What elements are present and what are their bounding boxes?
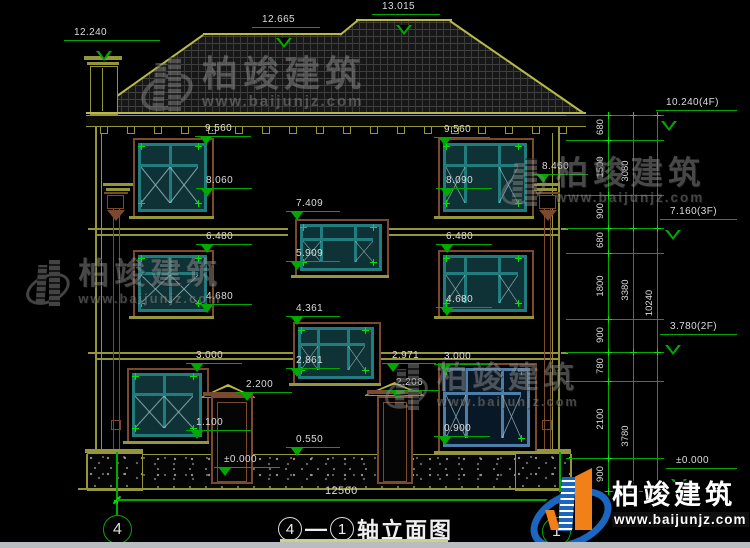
snap-cross xyxy=(521,435,522,442)
snap-cross xyxy=(303,224,304,231)
elevation-marker-text: 2.971 xyxy=(392,351,419,361)
title-axis-end-bubble: 1 xyxy=(330,517,354,541)
dim-tick-cross xyxy=(608,316,609,323)
entry-door xyxy=(377,396,413,484)
elevation-marker-triangle xyxy=(396,25,412,35)
elevation-marker-triangle xyxy=(291,212,303,220)
rain-funnel xyxy=(539,195,556,209)
elevation-marker-line xyxy=(656,110,737,111)
rain-funnel xyxy=(107,195,124,209)
window-sill xyxy=(291,275,389,278)
elevation-marker-triangle xyxy=(241,393,253,401)
dim-value-label: 10240 xyxy=(642,289,656,317)
elevation-marker-text: 4.361 xyxy=(296,304,323,314)
window-sill xyxy=(434,316,534,319)
chimney-body xyxy=(90,66,118,115)
pilaster-cap xyxy=(533,188,557,191)
floor-band-line xyxy=(95,234,288,236)
casement-mark xyxy=(502,395,522,438)
dim-value-label: 2100 xyxy=(593,405,607,433)
dim-tick-line xyxy=(566,381,664,382)
elevation-marker-triangle-inner xyxy=(279,38,289,45)
elevation-marker-text: 12.240 xyxy=(74,28,107,38)
dim-tick-cross xyxy=(657,225,658,232)
eave-dentil xyxy=(127,126,135,134)
wall-corner-line xyxy=(95,127,97,455)
rain-funnel-spout xyxy=(107,210,125,221)
snap-cross xyxy=(301,327,302,334)
elevation-marker-text: 3.000 xyxy=(444,352,471,362)
dim-tick-cross xyxy=(608,225,609,232)
brand-name: 柏竣建筑 xyxy=(612,482,749,509)
dim-value-label: 1500 xyxy=(593,153,607,181)
axis-bubble: 4 xyxy=(103,515,132,544)
dim-tick-cross xyxy=(657,112,658,119)
rain-funnel-spout xyxy=(539,210,557,221)
elevation-marker-text: 7.160(3F) xyxy=(670,207,717,217)
elevation-marker-text: 4.680 xyxy=(446,295,473,305)
eave-top-line xyxy=(86,112,586,114)
snap-cross xyxy=(521,368,522,375)
elevation-marker-triangle xyxy=(441,245,453,253)
roof-ridge-line xyxy=(356,19,452,21)
snap-cross xyxy=(518,255,519,262)
elevation-marker-triangle xyxy=(276,38,292,48)
elevation-marker-triangle xyxy=(201,305,213,313)
chimney-cap-2 xyxy=(87,62,119,65)
dim-value-label: 680 xyxy=(593,113,607,141)
wall-corner-line xyxy=(558,127,560,455)
snap-cross xyxy=(365,327,366,334)
casement-mark xyxy=(348,346,365,370)
dim-tick-line xyxy=(566,319,664,320)
elevation-marker-triangle xyxy=(665,230,681,240)
dim-tick-line xyxy=(566,352,664,353)
elevation-marker-text: 13.015 xyxy=(382,2,415,12)
dim-value-label: 3780 xyxy=(618,422,632,450)
pipe-clamp xyxy=(111,420,121,430)
elevation-marker-triangle xyxy=(291,262,303,270)
pilaster-cap xyxy=(103,183,133,186)
elevation-marker-triangle xyxy=(439,437,451,445)
snap-cross xyxy=(518,200,519,207)
snap-cross xyxy=(198,200,199,207)
elevation-marker-triangle xyxy=(291,448,303,456)
elevation-marker-text: 2.200 xyxy=(246,380,273,390)
elevation-marker-triangle xyxy=(291,369,303,377)
eave-dentil xyxy=(262,126,270,134)
floor-band-line xyxy=(95,228,288,230)
logo-orange-building-bar xyxy=(575,468,592,530)
snap-cross xyxy=(373,259,374,266)
snap-cross xyxy=(446,200,447,207)
elevation-marker-triangle xyxy=(439,138,451,146)
pipe-clamp xyxy=(542,420,552,430)
elevation-marker-text: 0.900 xyxy=(444,424,471,434)
elevation-marker-triangle xyxy=(537,175,549,183)
watermark-swoosh xyxy=(21,267,74,311)
watermark-building-bar xyxy=(36,265,48,303)
watermark-url: www.baijunjz.com xyxy=(556,190,706,205)
elevation-marker-text: 12.665 xyxy=(262,15,295,25)
funnel-cap-line xyxy=(536,192,560,194)
dim-tick-cross xyxy=(608,112,609,119)
dim-value-label: 900 xyxy=(593,321,607,349)
funnel-cap-line xyxy=(104,192,128,194)
watermark-building-bar xyxy=(49,260,60,306)
eave-dentil xyxy=(424,126,432,134)
eave-dentil xyxy=(478,126,486,134)
elevation-marker-text: 10.240(4F) xyxy=(666,98,719,108)
downpipe-line xyxy=(119,195,120,452)
snap-cross xyxy=(135,425,136,432)
elevation-marker-line xyxy=(64,40,160,41)
dim-tick-line xyxy=(566,195,664,196)
dim-tick-line xyxy=(566,228,664,229)
casement-mark xyxy=(141,275,170,303)
brand-logo: 柏竣建筑 www.baijunjz.com xyxy=(526,466,750,544)
snap-cross xyxy=(198,143,199,150)
window-frame xyxy=(298,327,374,379)
eave-dentil xyxy=(181,126,189,134)
elevation-marker-triangle xyxy=(96,51,112,61)
casement-mark xyxy=(135,396,164,428)
elevation-marker-triangle xyxy=(291,317,303,325)
eave-dentil xyxy=(235,126,243,134)
elevation-marker-triangle-inner xyxy=(399,25,409,32)
elevation-marker-text: 8.090 xyxy=(446,176,473,186)
dim-chain-line xyxy=(657,115,658,491)
snap-cross xyxy=(141,255,142,262)
casement-mark xyxy=(499,167,518,203)
elevation-marker-text: 3.780(2F) xyxy=(670,322,717,332)
eave-dentil xyxy=(316,126,324,134)
elevation-marker-text: 6.480 xyxy=(446,232,473,242)
elevation-marker-text: 0.550 xyxy=(296,435,323,445)
snap-cross xyxy=(518,143,519,150)
snap-cross xyxy=(518,300,519,307)
dim-tick-cross xyxy=(608,378,609,385)
elevation-marker-text: 6.480 xyxy=(206,232,233,242)
floor-band-line xyxy=(95,358,293,360)
dim-tick-cross xyxy=(608,455,609,462)
window xyxy=(133,138,214,219)
elevation-marker-triangle xyxy=(200,137,212,145)
elevation-marker-line xyxy=(660,334,737,335)
dim-tick-line xyxy=(566,140,664,141)
eave-dentil xyxy=(289,126,297,134)
window-sill xyxy=(129,216,214,219)
elevation-marker-triangle xyxy=(219,468,231,476)
title-axis-start-bubble: 4 xyxy=(278,517,302,541)
window-bottom-border xyxy=(0,542,750,548)
window xyxy=(438,363,537,454)
eave-dentil xyxy=(154,126,162,134)
casement-mark xyxy=(355,241,373,262)
elevation-marker-text: 4.680 xyxy=(206,292,233,302)
eave-dentil xyxy=(559,126,567,134)
elevation-marker-triangle xyxy=(439,365,451,373)
roof-ridge-line xyxy=(203,33,342,35)
downpipe-line xyxy=(550,195,551,452)
elevation-marker-triangle xyxy=(387,364,399,372)
cad-canvas: 12.24012.66513.0159.5608.0607.4096.4805.… xyxy=(0,0,750,548)
elevation-marker-line xyxy=(660,219,737,220)
dim-tick-cross xyxy=(657,349,658,356)
dim-value-label: 3080 xyxy=(618,157,632,185)
elevation-marker-triangle xyxy=(201,245,213,253)
window-frame xyxy=(132,373,202,437)
elevation-marker-text: 8.060 xyxy=(206,176,233,186)
pilaster-cap xyxy=(106,188,130,191)
snap-cross xyxy=(446,255,447,262)
snap-cross xyxy=(135,373,136,380)
casement-mark xyxy=(164,396,193,428)
elevation-marker-triangle xyxy=(661,121,677,131)
overall-dim-text: 12560 xyxy=(325,486,358,496)
dim-tick-cross xyxy=(633,112,634,119)
dim-tick-cross xyxy=(608,250,609,257)
window-sill xyxy=(289,383,381,386)
elevation-marker-triangle xyxy=(191,364,203,372)
elevation-marker-text: ±0.000 xyxy=(224,455,257,465)
casement-mark xyxy=(170,167,199,203)
pilaster-cap xyxy=(530,183,560,186)
entry-door xyxy=(211,396,253,484)
snap-cross xyxy=(141,200,142,207)
elevation-marker-triangle-inner xyxy=(99,51,109,58)
overall-dim-line xyxy=(117,499,560,501)
eave-dentil xyxy=(505,126,513,134)
downpipe-line xyxy=(544,195,545,452)
band-ledge xyxy=(88,352,95,354)
band-ledge xyxy=(88,228,95,230)
snap-cross xyxy=(365,367,366,374)
elevation-marker-text: 5.909 xyxy=(296,249,323,259)
elevation-marker-text: 9.560 xyxy=(205,124,232,134)
elevation-marker-text: 2.206 xyxy=(396,378,423,388)
wall-corner-line xyxy=(552,133,553,455)
dim-tick-line xyxy=(566,115,664,116)
window xyxy=(293,322,381,386)
eave-dentil xyxy=(532,126,540,134)
casement-mark xyxy=(499,275,518,303)
corner-pedestal xyxy=(87,453,143,491)
elevation-marker-text: 3.000 xyxy=(196,351,223,361)
brand-logo-icon xyxy=(526,466,612,544)
window-sill xyxy=(434,216,534,219)
elevation-marker-text: 8.460 xyxy=(542,162,569,172)
dim-tick-line xyxy=(566,253,664,254)
eave-dentil xyxy=(397,126,405,134)
floor-band-line xyxy=(385,228,558,230)
window-sill xyxy=(129,316,214,319)
watermark-logo-icon xyxy=(25,258,71,311)
elevation-marker-line xyxy=(372,14,440,15)
elevation-marker-triangle xyxy=(665,345,681,355)
axis-line-4 xyxy=(116,452,118,515)
snap-cross xyxy=(141,143,142,150)
snap-cross xyxy=(193,373,194,380)
brand-url: www.baijunjz.com xyxy=(612,512,749,527)
dim-tick-line xyxy=(566,458,664,459)
dim-chain-line xyxy=(633,115,634,491)
wall-corner-line xyxy=(101,133,102,455)
elevation-marker-triangle xyxy=(441,308,453,316)
dim-tick-cross xyxy=(633,225,634,232)
elevation-marker-triangle-inner xyxy=(668,230,678,237)
dim-value-label: 680 xyxy=(593,226,607,254)
dim-value-label: 900 xyxy=(593,197,607,225)
floor-band-line xyxy=(95,352,293,354)
door-leaf xyxy=(383,402,407,482)
elevation-marker-triangle-inner xyxy=(664,121,674,128)
eave-dentil xyxy=(343,126,351,134)
chimney-flue-line xyxy=(102,68,103,111)
dim-value-label: 3380 xyxy=(618,276,632,304)
elevation-marker-text: ±0.000 xyxy=(676,456,709,466)
dim-chain-line xyxy=(608,115,609,491)
elevation-marker-triangle xyxy=(441,189,453,197)
elevation-marker-triangle xyxy=(391,391,403,399)
elevation-marker-text: 7.409 xyxy=(296,199,323,209)
dim-tick-cross xyxy=(608,349,609,356)
elevation-marker-text: 9.560 xyxy=(444,125,471,135)
dim-value-label: 1800 xyxy=(593,272,607,300)
casement-mark xyxy=(141,167,170,203)
downpipe-line xyxy=(113,195,114,452)
window-frame xyxy=(138,143,207,212)
window-sill xyxy=(123,441,209,444)
eave-dentil xyxy=(370,126,378,134)
elevation-marker-triangle-inner xyxy=(668,345,678,352)
snap-cross xyxy=(141,300,142,307)
dim-tick-cross xyxy=(608,137,609,144)
dim-tick-cross xyxy=(633,349,634,356)
brand-logo-text: 柏竣建筑 www.baijunjz.com xyxy=(612,482,749,529)
elevation-marker-line xyxy=(252,27,320,28)
snap-cross xyxy=(198,255,199,262)
elevation-marker-text: 1.100 xyxy=(196,418,223,428)
elevation-marker-triangle xyxy=(201,189,213,197)
dim-value-label: 780 xyxy=(593,352,607,380)
dim-tick-cross xyxy=(608,192,609,199)
snap-cross xyxy=(373,224,374,231)
window-sill xyxy=(434,451,537,454)
casement-mark xyxy=(170,275,199,303)
elevation-marker-text: 2.861 xyxy=(296,356,323,366)
elevation-marker-triangle xyxy=(191,431,203,439)
